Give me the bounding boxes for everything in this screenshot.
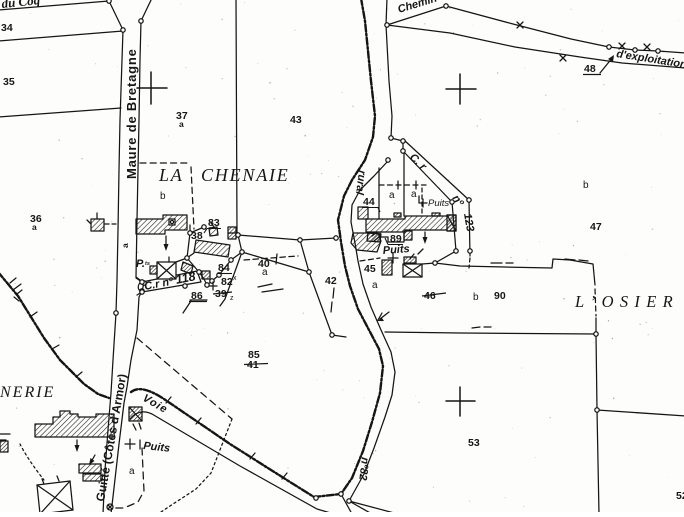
svg-text:L’OSIER: L’OSIER (574, 292, 679, 311)
svg-text:43: 43 (290, 114, 302, 126)
svg-text:42: 42 (325, 275, 337, 287)
svg-text:a: a (411, 189, 417, 200)
svg-text:82: 82 (221, 276, 233, 288)
svg-text:a: a (262, 267, 268, 278)
svg-text:53: 53 (468, 437, 480, 449)
svg-text:a: a (129, 466, 135, 477)
svg-text:a: a (179, 119, 184, 129)
svg-text:84: 84 (218, 262, 230, 274)
svg-text:35: 35 (3, 76, 15, 88)
svg-text:38: 38 (191, 230, 203, 242)
svg-text:CHENAIE: CHENAIE (201, 165, 290, 185)
svg-text:90: 90 (494, 290, 506, 302)
svg-text:LA: LA (158, 165, 184, 185)
svg-text:a: a (120, 243, 130, 248)
svg-text:b: b (583, 180, 589, 191)
svg-text:a: a (372, 280, 378, 291)
svg-text:z: z (230, 295, 234, 302)
svg-text:47: 47 (590, 221, 602, 233)
svg-text:34: 34 (1, 22, 13, 34)
svg-text:NERIE: NERIE (0, 384, 55, 401)
svg-text:45: 45 (364, 263, 376, 275)
svg-text:86: 86 (191, 290, 203, 302)
svg-text:Puits: Puits (382, 243, 410, 257)
svg-text:a: a (32, 222, 37, 232)
svg-text:Puits: Puits (428, 198, 449, 209)
svg-text:Maure de Bretagne: Maure de Bretagne (124, 48, 139, 179)
svg-text:48: 48 (584, 63, 596, 75)
svg-text:52: 52 (676, 490, 684, 502)
svg-text:a: a (389, 190, 395, 201)
svg-text:b: b (160, 191, 166, 202)
svg-text:x: x (233, 275, 237, 282)
svg-text:b: b (473, 292, 479, 303)
svg-text:41: 41 (247, 359, 259, 371)
svg-text:83: 83 (208, 217, 220, 229)
svg-text:44: 44 (363, 196, 375, 208)
